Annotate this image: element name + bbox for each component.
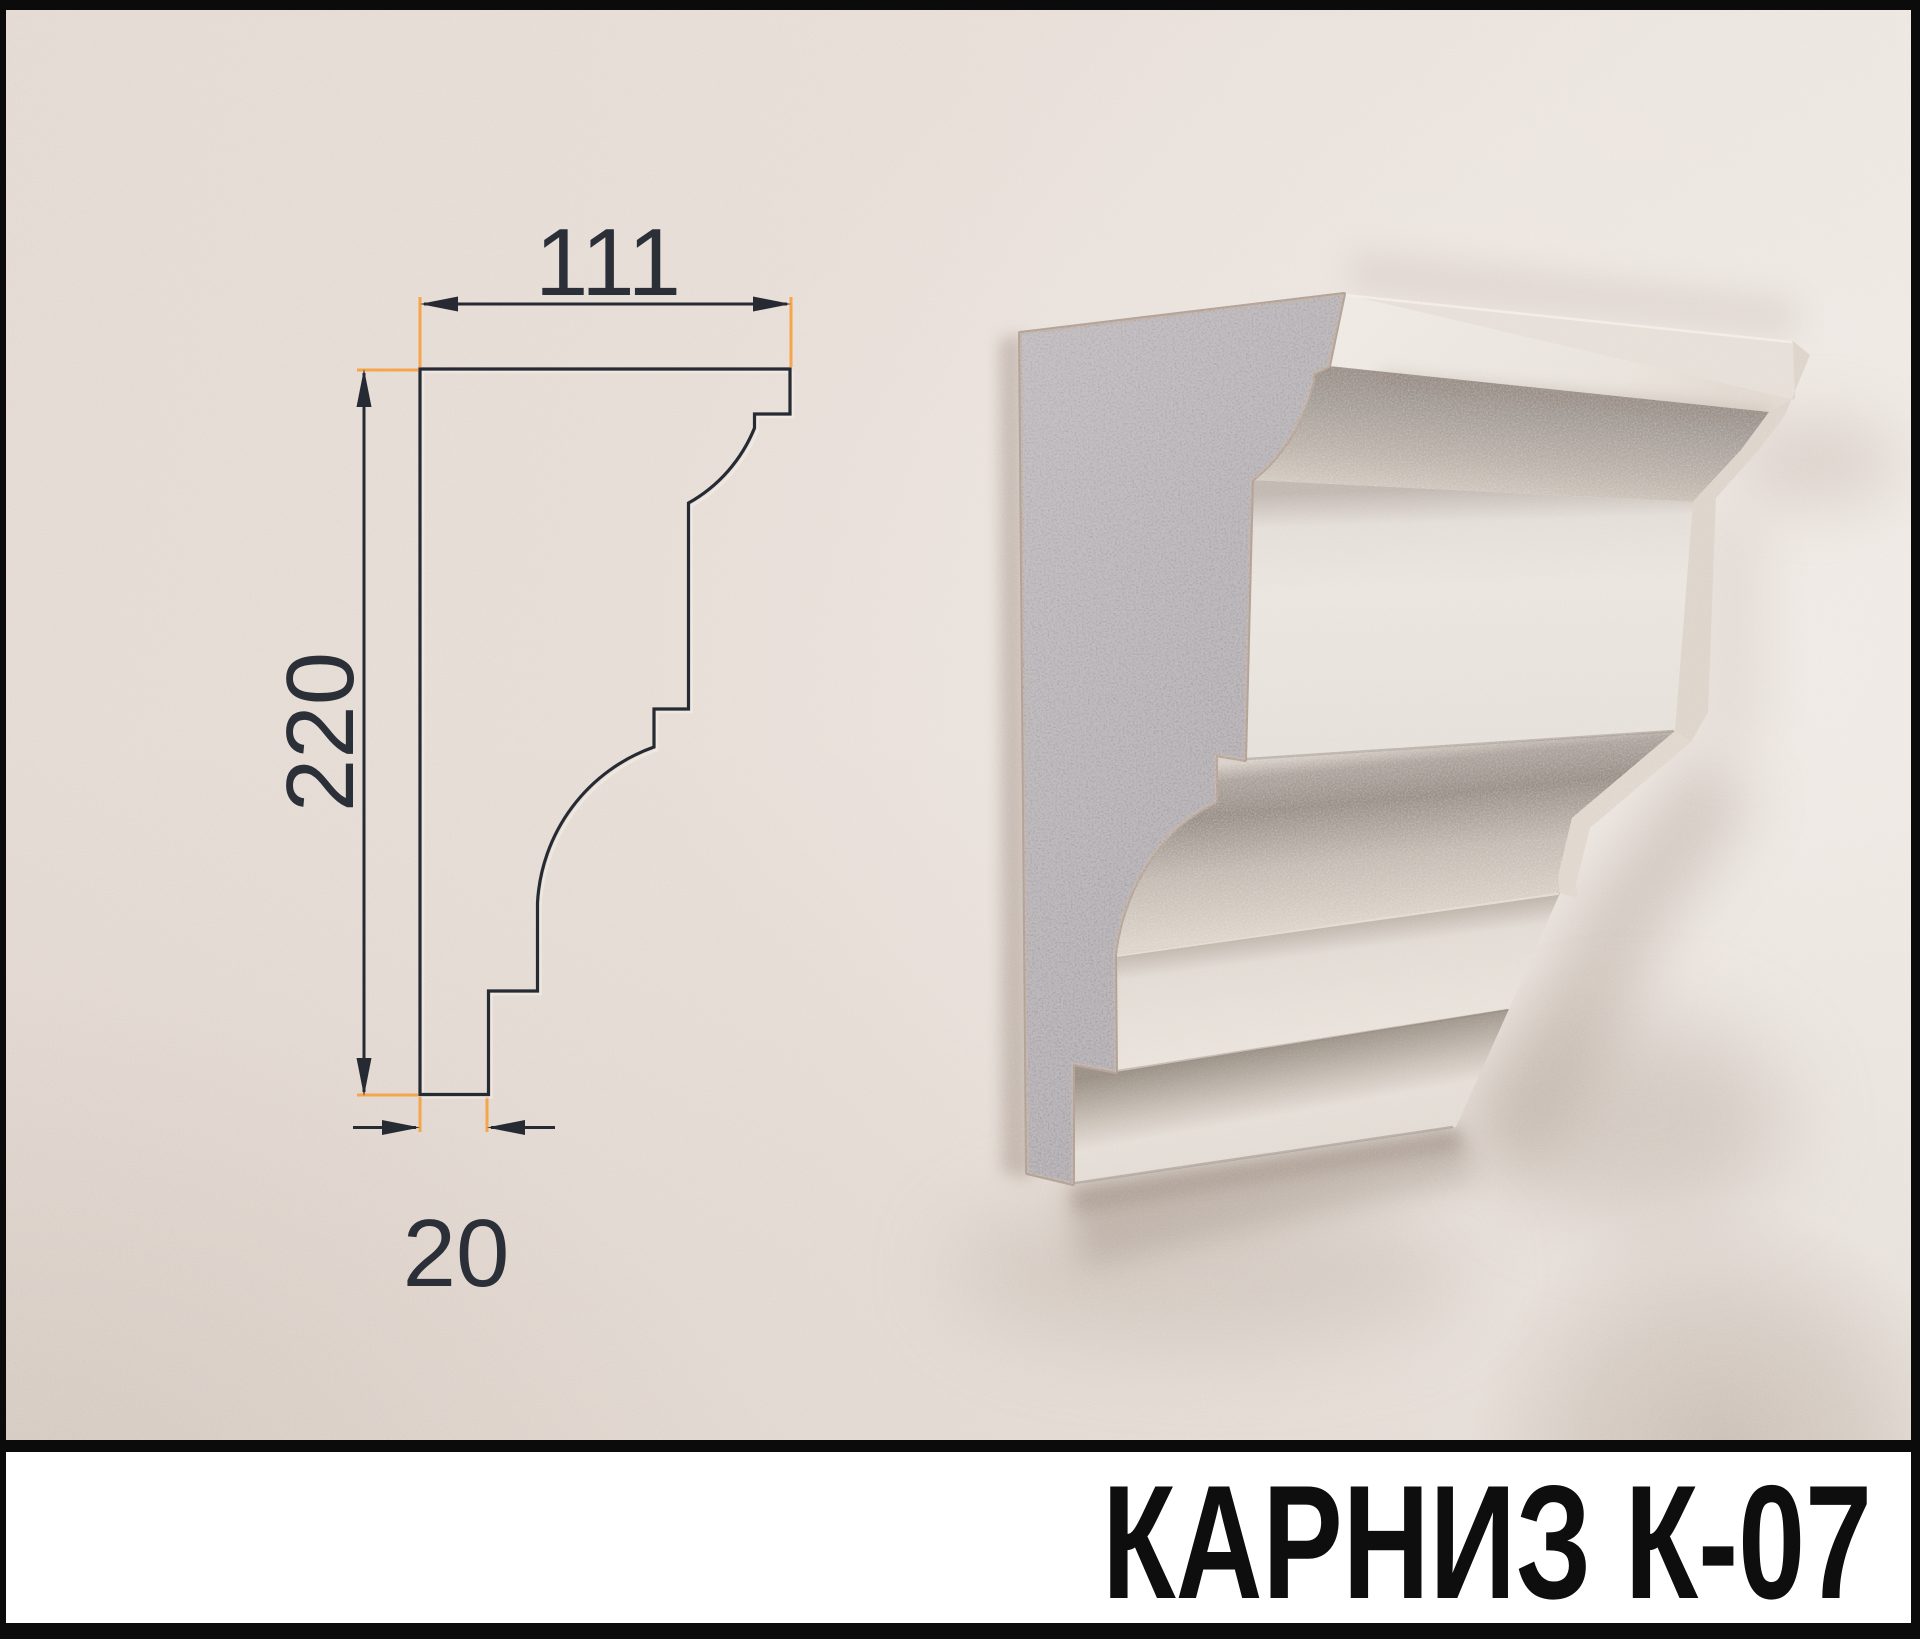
svg-text:20: 20 [403,1200,510,1307]
svg-text:220: 220 [267,652,374,812]
svg-text:111: 111 [535,209,681,316]
svg-text:КАРНИЗ К-07: КАРНИЗ К-07 [1102,1453,1872,1634]
